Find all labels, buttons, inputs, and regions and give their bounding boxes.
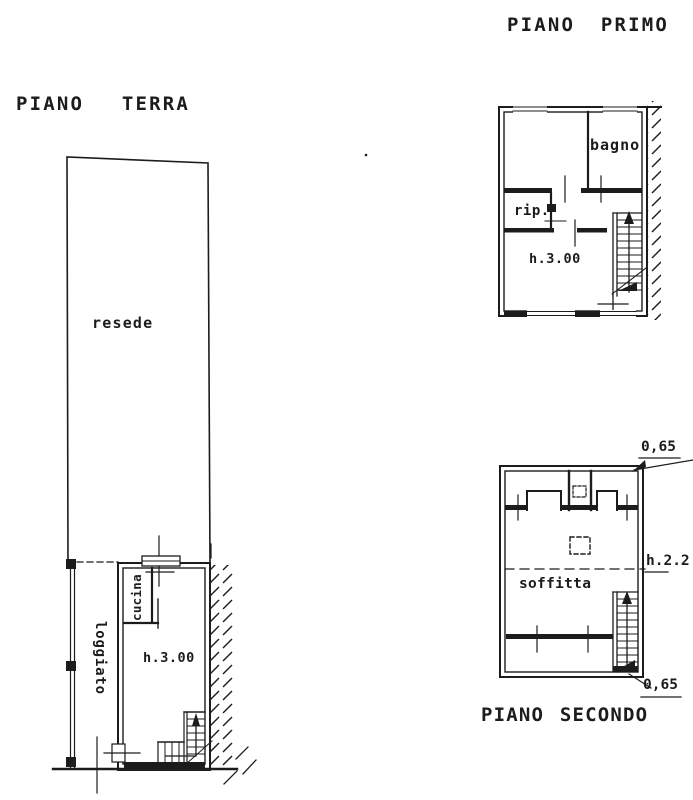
label-loggiato: loggiato [92, 621, 108, 695]
label-cucina: cucina [130, 574, 144, 621]
stair-second [613, 591, 638, 672]
hatch-band-ground [211, 565, 233, 768]
label-dim-top: 0,65 [641, 439, 676, 456]
label-bagno: bagno [590, 137, 640, 154]
scan-speck [365, 154, 368, 157]
first-floor-plan [365, 101, 661, 320]
storage-partition [504, 193, 607, 246]
plot-outline [67, 157, 210, 563]
dim-leader-top [632, 458, 693, 472]
label-height-first: h.3.00 [529, 252, 581, 268]
attic-top-wall [505, 471, 638, 520]
hatch-band-first [647, 101, 661, 320]
stair-ground [158, 712, 212, 766]
ground-floor-plan [53, 157, 256, 793]
label-height-ground: h.3.00 [143, 651, 195, 667]
loggiato-colonnade [66, 559, 76, 768]
attic-lower-wall [506, 626, 613, 652]
floorplan-sheet: PIANO TERRA PIANO PRIMO PIANO SECONDO re… [0, 0, 693, 800]
label-soffitta: soffitta [519, 576, 591, 593]
title-ground-floor: PIANO TERRA [16, 94, 190, 116]
label-height-second: h.2.2 [646, 553, 690, 570]
title-first-floor: PIANO PRIMO [507, 15, 669, 37]
interior-wall-first [504, 176, 642, 202]
windows-first-bottom [504, 310, 636, 317]
title-second-floor: PIANO SECONDO [481, 705, 648, 727]
dashed-square [570, 537, 590, 554]
label-dim-bottom: 0,65 [643, 677, 678, 694]
stair-first [598, 211, 646, 311]
label-resede: resede [92, 315, 153, 332]
label-rip: rip. [514, 203, 550, 219]
